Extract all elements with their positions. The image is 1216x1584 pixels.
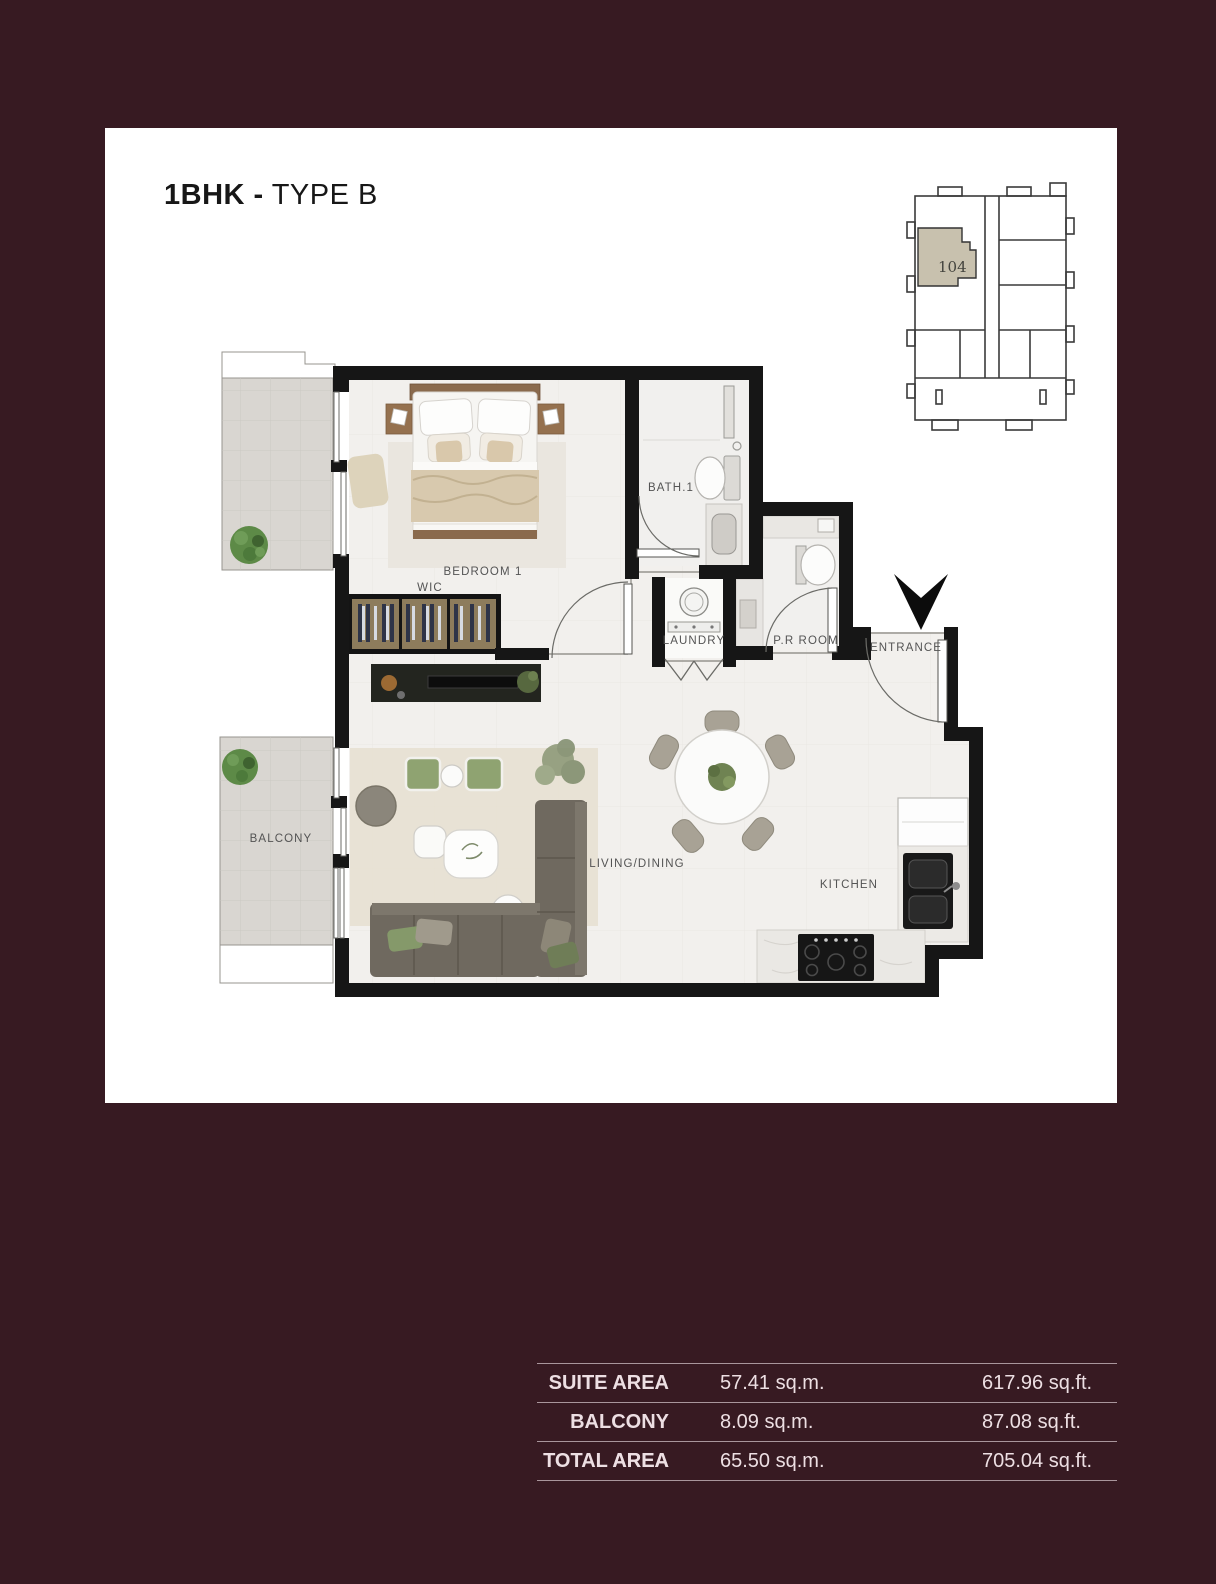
- living-dining-label: LIVING/DINING: [589, 858, 684, 870]
- area-sqm: 8.09 sq.m.: [720, 1403, 813, 1442]
- table-row-balcony: BALCONY AREA 8.09 sq.m. 87.08 sq.ft.: [537, 1402, 1117, 1441]
- unit-104-label: 104: [938, 258, 967, 276]
- tv-console: [371, 664, 541, 702]
- key-plan: 104: [907, 183, 1074, 430]
- area-table: SUITE AREA 57.41 sq.m. 617.96 sq.ft. BAL…: [537, 1363, 1117, 1481]
- wic-label: WIC: [417, 582, 443, 594]
- table-row-total: TOTAL AREA 65.50 sq.m. 705.04 sq.ft.: [537, 1441, 1117, 1481]
- laundry-label: LAUNDRY: [663, 635, 725, 647]
- entrance-label: ENTRANCE: [870, 642, 942, 654]
- plan-graphics: 104 BALCONY: [0, 0, 1216, 1584]
- bedroom-label: BEDROOM 1: [444, 566, 523, 578]
- living-furniture: [350, 739, 598, 977]
- balcony-plant: [230, 526, 268, 564]
- area-label: SUITE AREA: [537, 1364, 669, 1403]
- area-sqft: 87.08 sq.ft.: [982, 1403, 1081, 1442]
- area-label: TOTAL AREA: [537, 1442, 669, 1481]
- balcony-lower: BALCONY: [220, 737, 333, 983]
- brochure-page: 1BHK - TYPE B: [0, 0, 1216, 1584]
- area-sqm: 57.41 sq.m.: [720, 1364, 825, 1403]
- balcony-label: BALCONY: [250, 833, 313, 845]
- area-sqm: 65.50 sq.m.: [720, 1442, 825, 1481]
- table-row-suite: SUITE AREA 57.41 sq.m. 617.96 sq.ft.: [537, 1363, 1117, 1402]
- area-sqft: 705.04 sq.ft.: [982, 1442, 1092, 1481]
- wic-wardrobe: [347, 594, 501, 654]
- balcony-upper: [222, 352, 335, 570]
- bath-label: BATH.1: [648, 482, 694, 494]
- entrance-arrow-icon: [894, 574, 948, 630]
- kitchen-label: KITCHEN: [820, 879, 878, 891]
- area-sqft: 617.96 sq.ft.: [982, 1364, 1092, 1403]
- pr-room-label: P.R ROOM: [773, 635, 838, 647]
- balcony-plant: [222, 749, 258, 785]
